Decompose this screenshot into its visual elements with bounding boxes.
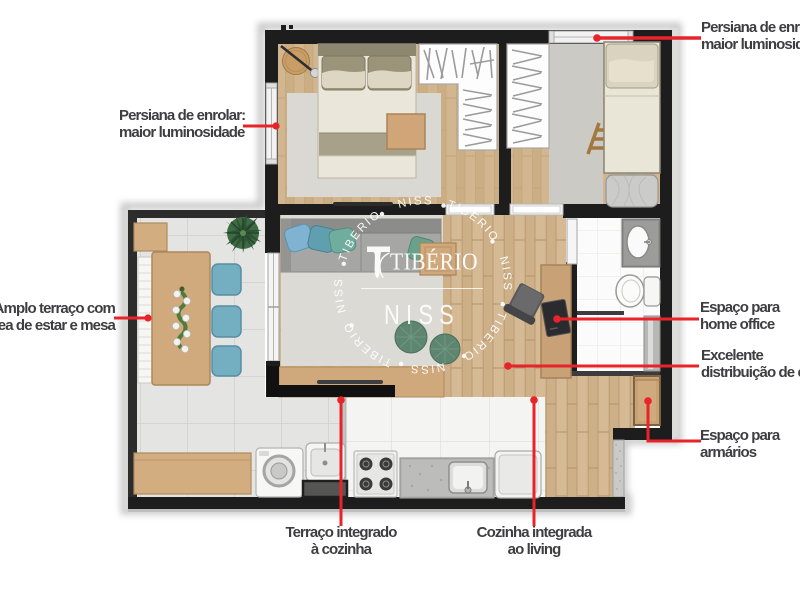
svg-text:TIBÉRIO: TIBÉRIO	[390, 250, 478, 276]
svg-text:NISS: NISS	[384, 299, 460, 330]
